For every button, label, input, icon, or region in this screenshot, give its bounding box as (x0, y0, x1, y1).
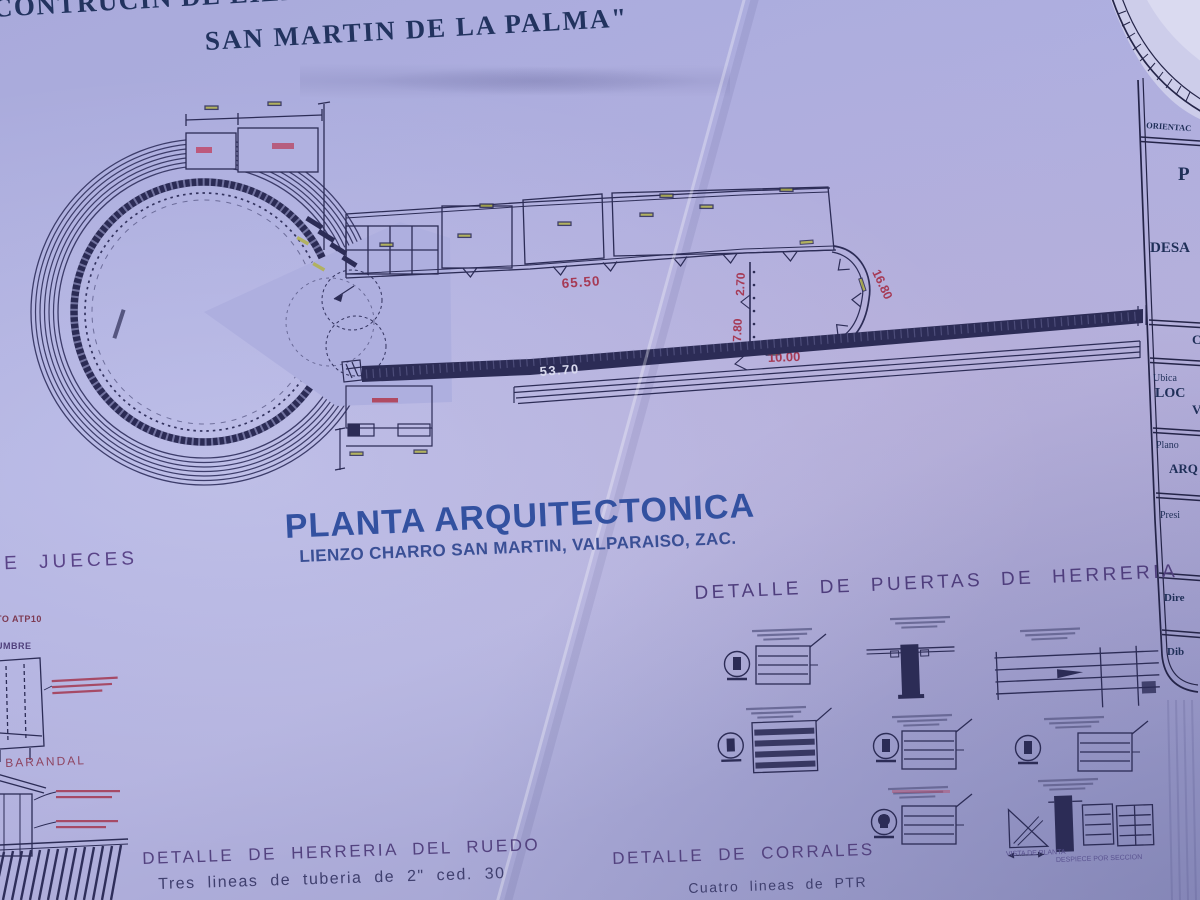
jueces-note-umbre: UMBRE (0, 641, 32, 651)
barandal-label: BARANDAL (5, 753, 86, 770)
dim-7-80: 7.80 (730, 318, 745, 342)
despiece-label: DESPIECE POR SECCION (1056, 854, 1143, 864)
tb-ubica: Ubica (1153, 373, 1177, 384)
tb-p: P (1178, 164, 1190, 185)
dim-16-80: 16.80 (869, 267, 895, 301)
tb-desa: DESA (1150, 240, 1190, 256)
door-detail-post (866, 643, 956, 700)
tb-plano: Plano (1156, 440, 1179, 451)
gradas-lines (514, 341, 1140, 404)
tb-dib: Dib (1167, 646, 1184, 658)
door-detail-section (1006, 793, 1154, 859)
tb-v: V (1192, 402, 1200, 417)
tb-c: C (1192, 332, 1200, 347)
tb-dire: Dire (1164, 592, 1185, 604)
dim-53-70: 53.70 (539, 361, 580, 379)
door-detail-wide-gate (994, 645, 1160, 712)
blueprint-drawing: 65.50 2.70 7.80 16.80 (0, 0, 1200, 900)
tb-orientacion: ORIENTAC (1146, 120, 1192, 133)
dim-2-70: 2.70 (733, 272, 748, 296)
dim-65-50: 65.50 (561, 273, 601, 291)
left-details (0, 658, 128, 900)
jueces-note-atp10: TO ATP10 (0, 614, 42, 624)
blueprint-photo: 65.50 2.70 7.80 16.80 (0, 0, 1200, 900)
tb-arq: ARQ (1169, 461, 1198, 476)
door-details: VISTA DE PLANTA DESPIECE POR SECCION (717, 616, 1161, 864)
sheet-corner (1110, 0, 1200, 120)
paper-edge-stripes (1168, 700, 1196, 900)
tb-loc: LOC (1155, 386, 1185, 401)
tb-presi: Presi (1160, 510, 1180, 521)
bleedthrough-text-ghost (300, 60, 730, 102)
